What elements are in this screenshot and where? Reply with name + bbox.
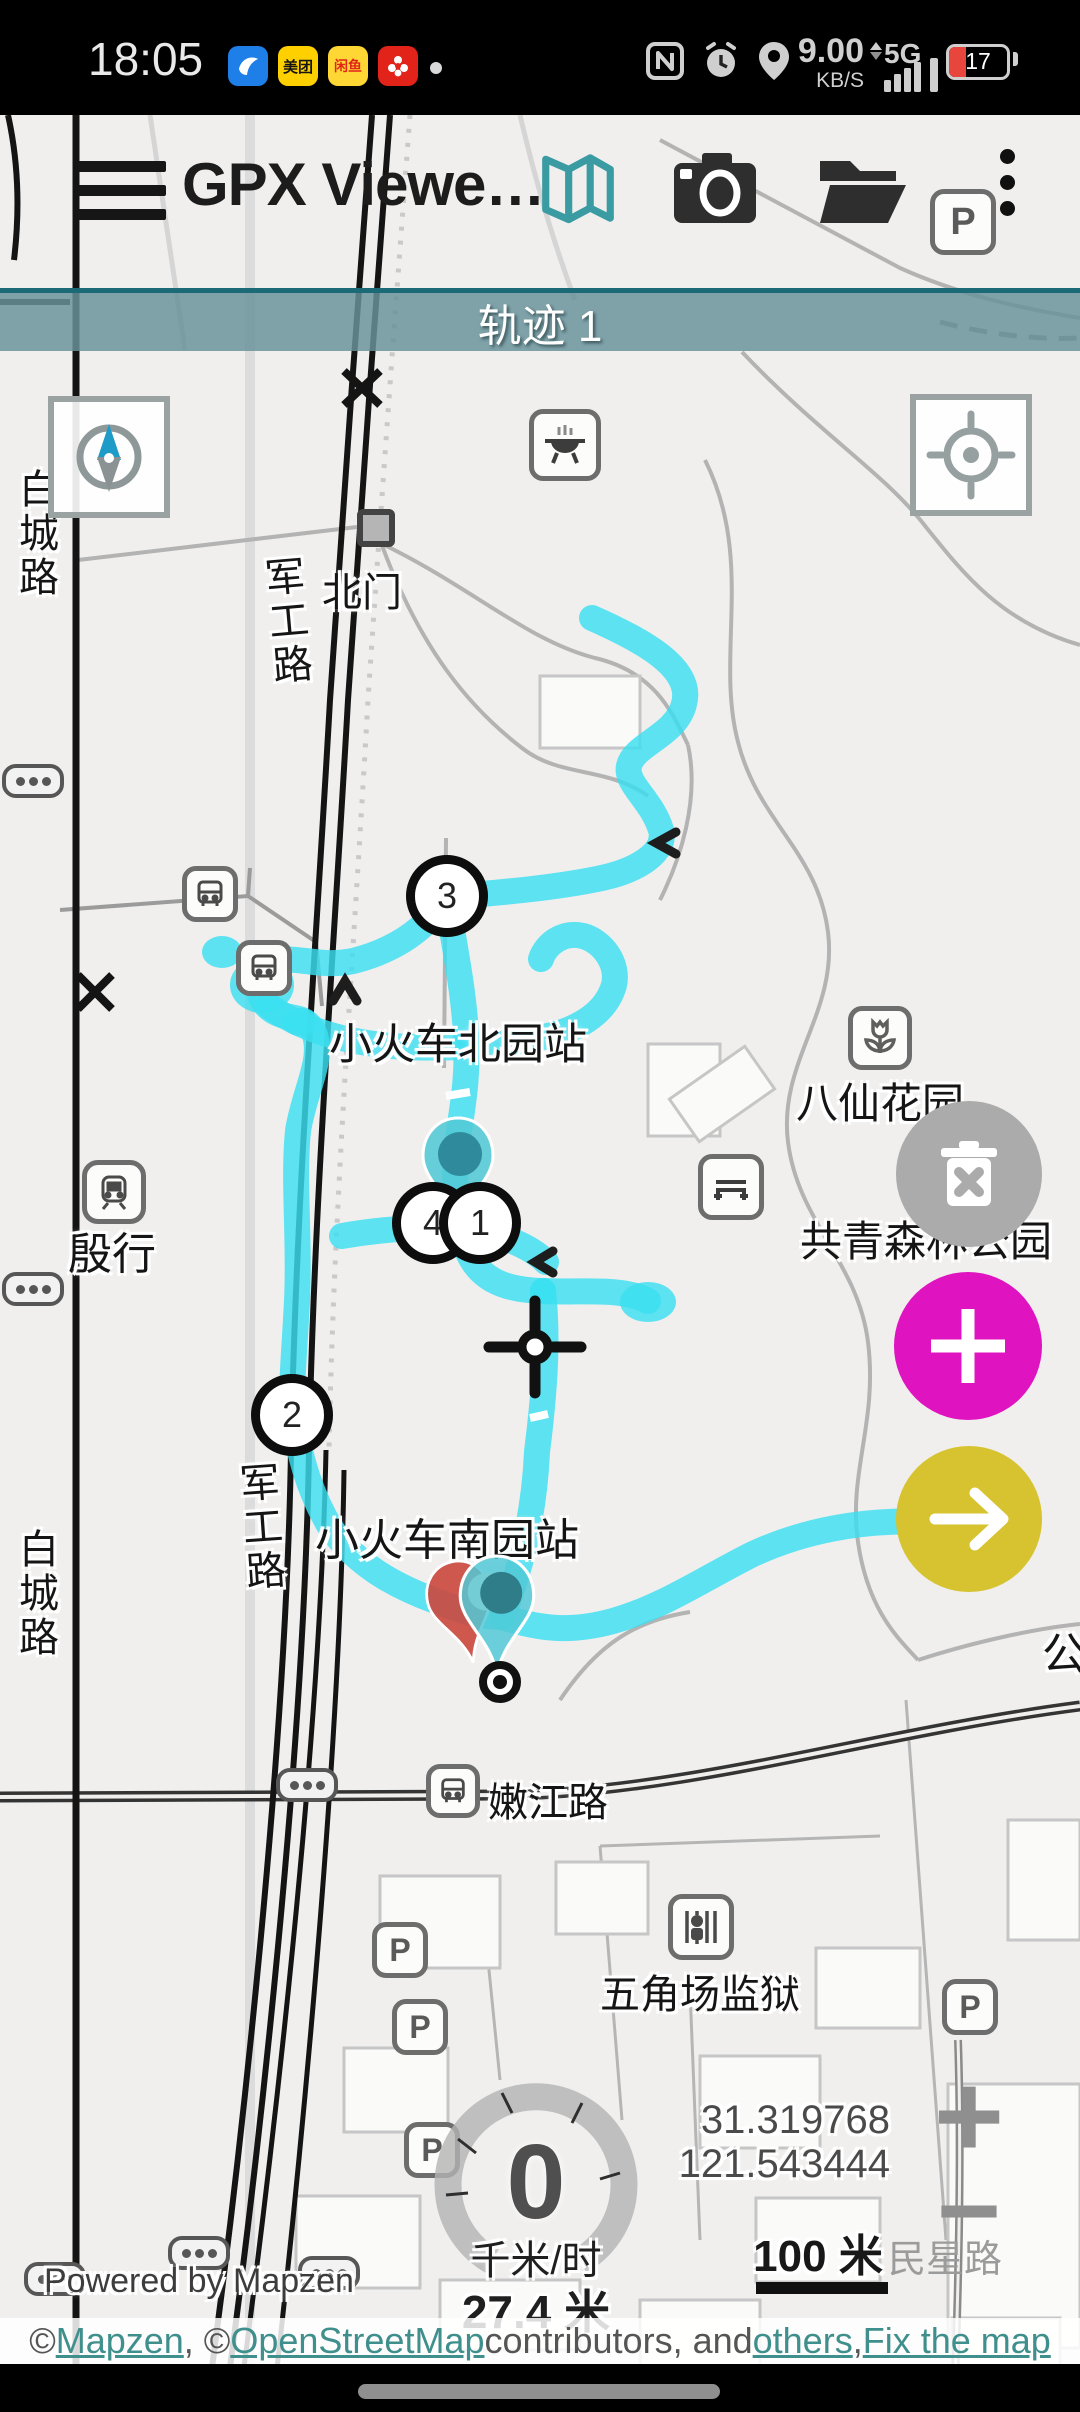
meituan-notification-icon: 美团 — [278, 46, 318, 86]
my-location-button[interactable] — [910, 394, 1032, 516]
waypoint-marker-2[interactable]: 2 — [251, 1374, 333, 1456]
parking-icon: P — [372, 1922, 428, 1978]
add-fab[interactable] — [894, 1272, 1042, 1420]
parking-icon: P — [392, 1999, 448, 2055]
folder-icon — [816, 155, 906, 225]
screenshot-button[interactable] — [672, 151, 758, 230]
attrib-text: , © — [184, 2320, 231, 2362]
speed-value: 0 — [507, 2122, 566, 2243]
map-icon — [540, 147, 616, 229]
xianyu-notification-icon: 闲鱼 — [328, 46, 368, 86]
attrib-text: © — [29, 2320, 56, 2362]
menu-button[interactable] — [78, 161, 166, 233]
openstreetmap-link[interactable]: OpenStreetMap — [230, 2320, 484, 2362]
battery-level: 17 — [949, 48, 1007, 75]
signal-strength-icon — [884, 58, 940, 92]
track-name-banner: 轨迹 1 — [0, 288, 1080, 351]
attrib-text: contributors, and — [484, 2320, 752, 2362]
longitude-value: 121.543444 — [600, 2142, 890, 2187]
network-speed-unit: KB/S — [770, 70, 864, 91]
bus-stop-icon — [182, 866, 238, 922]
app-title: GPX Viewe… — [182, 150, 544, 219]
map-center-crosshair-icon — [475, 1287, 595, 1407]
traffic-light-icon — [276, 1768, 338, 1802]
network-speed-indicator: 9.00 KB/S — [770, 34, 864, 91]
red-app-notification-icon — [378, 46, 418, 86]
others-link[interactable]: others — [753, 2320, 853, 2362]
data-arrows-icon — [868, 40, 884, 74]
battery-indicator: 17 — [946, 44, 1010, 80]
label-north-gate: 北门 — [322, 560, 402, 618]
open-file-button[interactable] — [816, 155, 906, 230]
network-speed-value: 9.00 — [770, 34, 864, 68]
scale-label: 100 米 — [753, 2220, 883, 2284]
overflow-menu-button[interactable] — [1000, 149, 1015, 227]
app-toolbar: GPX Viewe… — [0, 115, 1080, 255]
powered-by-label: Powered by Mapzen — [44, 2262, 354, 2301]
label-metro-station: 殷行 — [68, 1218, 156, 1282]
track-name: 轨迹 1 — [478, 290, 603, 354]
gpx-viewer-app: 北门 小火车北园站 小火车南园站 八仙花园 共青森林公园 殷行 嫩江路 五角场监… — [0, 0, 1080, 2412]
map-attribution: © Mapzen, © OpenStreetMap contributors, … — [0, 2318, 1080, 2364]
status-bar: 18:05 美团 闲鱼 9.00 KB/S 5G — [0, 0, 1080, 115]
home-indicator[interactable] — [358, 2384, 720, 2399]
camera-icon — [672, 151, 758, 225]
delete-track-fab[interactable] — [896, 1101, 1042, 1247]
flower-garden-icon — [848, 1006, 912, 1070]
track-endpoint-target-icon — [474, 1656, 526, 1708]
parking-icon: P — [942, 1979, 998, 2035]
label-jungong-road-south: 军工路 — [225, 1460, 292, 1596]
waypoint-marker-1[interactable]: 1 — [439, 1182, 521, 1264]
traffic-light-icon — [2, 764, 64, 798]
label-nenjiang-road: 嫩江路 — [488, 1770, 608, 1828]
nfc-status-icon — [646, 42, 684, 80]
metro-station-icon — [82, 1160, 146, 1224]
scale-bar — [756, 2282, 888, 2294]
fix-the-map-link[interactable]: Fix the map — [863, 2320, 1051, 2362]
bus-stop-icon — [236, 940, 292, 996]
notification-overflow-dot — [430, 62, 442, 74]
navigate-fab[interactable] — [896, 1446, 1042, 1592]
map-style-button[interactable] — [540, 147, 616, 234]
bench-icon — [698, 1154, 764, 1220]
waypoint-marker-3[interactable]: 3 — [406, 855, 488, 937]
prison-icon — [668, 1894, 734, 1960]
alarm-status-icon — [700, 40, 742, 82]
traffic-light-icon — [2, 1272, 64, 1306]
latitude-value: 31.319768 — [600, 2098, 890, 2143]
bus-stop-icon — [426, 1764, 480, 1818]
zoom-out-button[interactable]: − — [926, 2168, 1012, 2254]
label-park-edge: 公 — [1042, 1618, 1080, 1682]
attrib-text: , — [853, 2320, 863, 2362]
gate-marker-icon — [357, 509, 395, 547]
compass-button[interactable] — [48, 396, 170, 518]
label-north-station: 小火车北园站 — [329, 1010, 587, 1072]
label-baicheng-road-south: 白城路 — [6, 1528, 64, 1660]
label-jungong-road-north: 军工路 — [250, 554, 319, 691]
clock-time: 18:05 — [88, 32, 203, 86]
mapzen-link[interactable]: Mapzen — [56, 2320, 184, 2362]
bbq-grill-icon — [529, 409, 601, 481]
battery-cap — [1013, 52, 1018, 66]
dingtalk-notification-icon — [228, 46, 268, 86]
label-prison: 五角场监狱 — [600, 1962, 800, 2020]
